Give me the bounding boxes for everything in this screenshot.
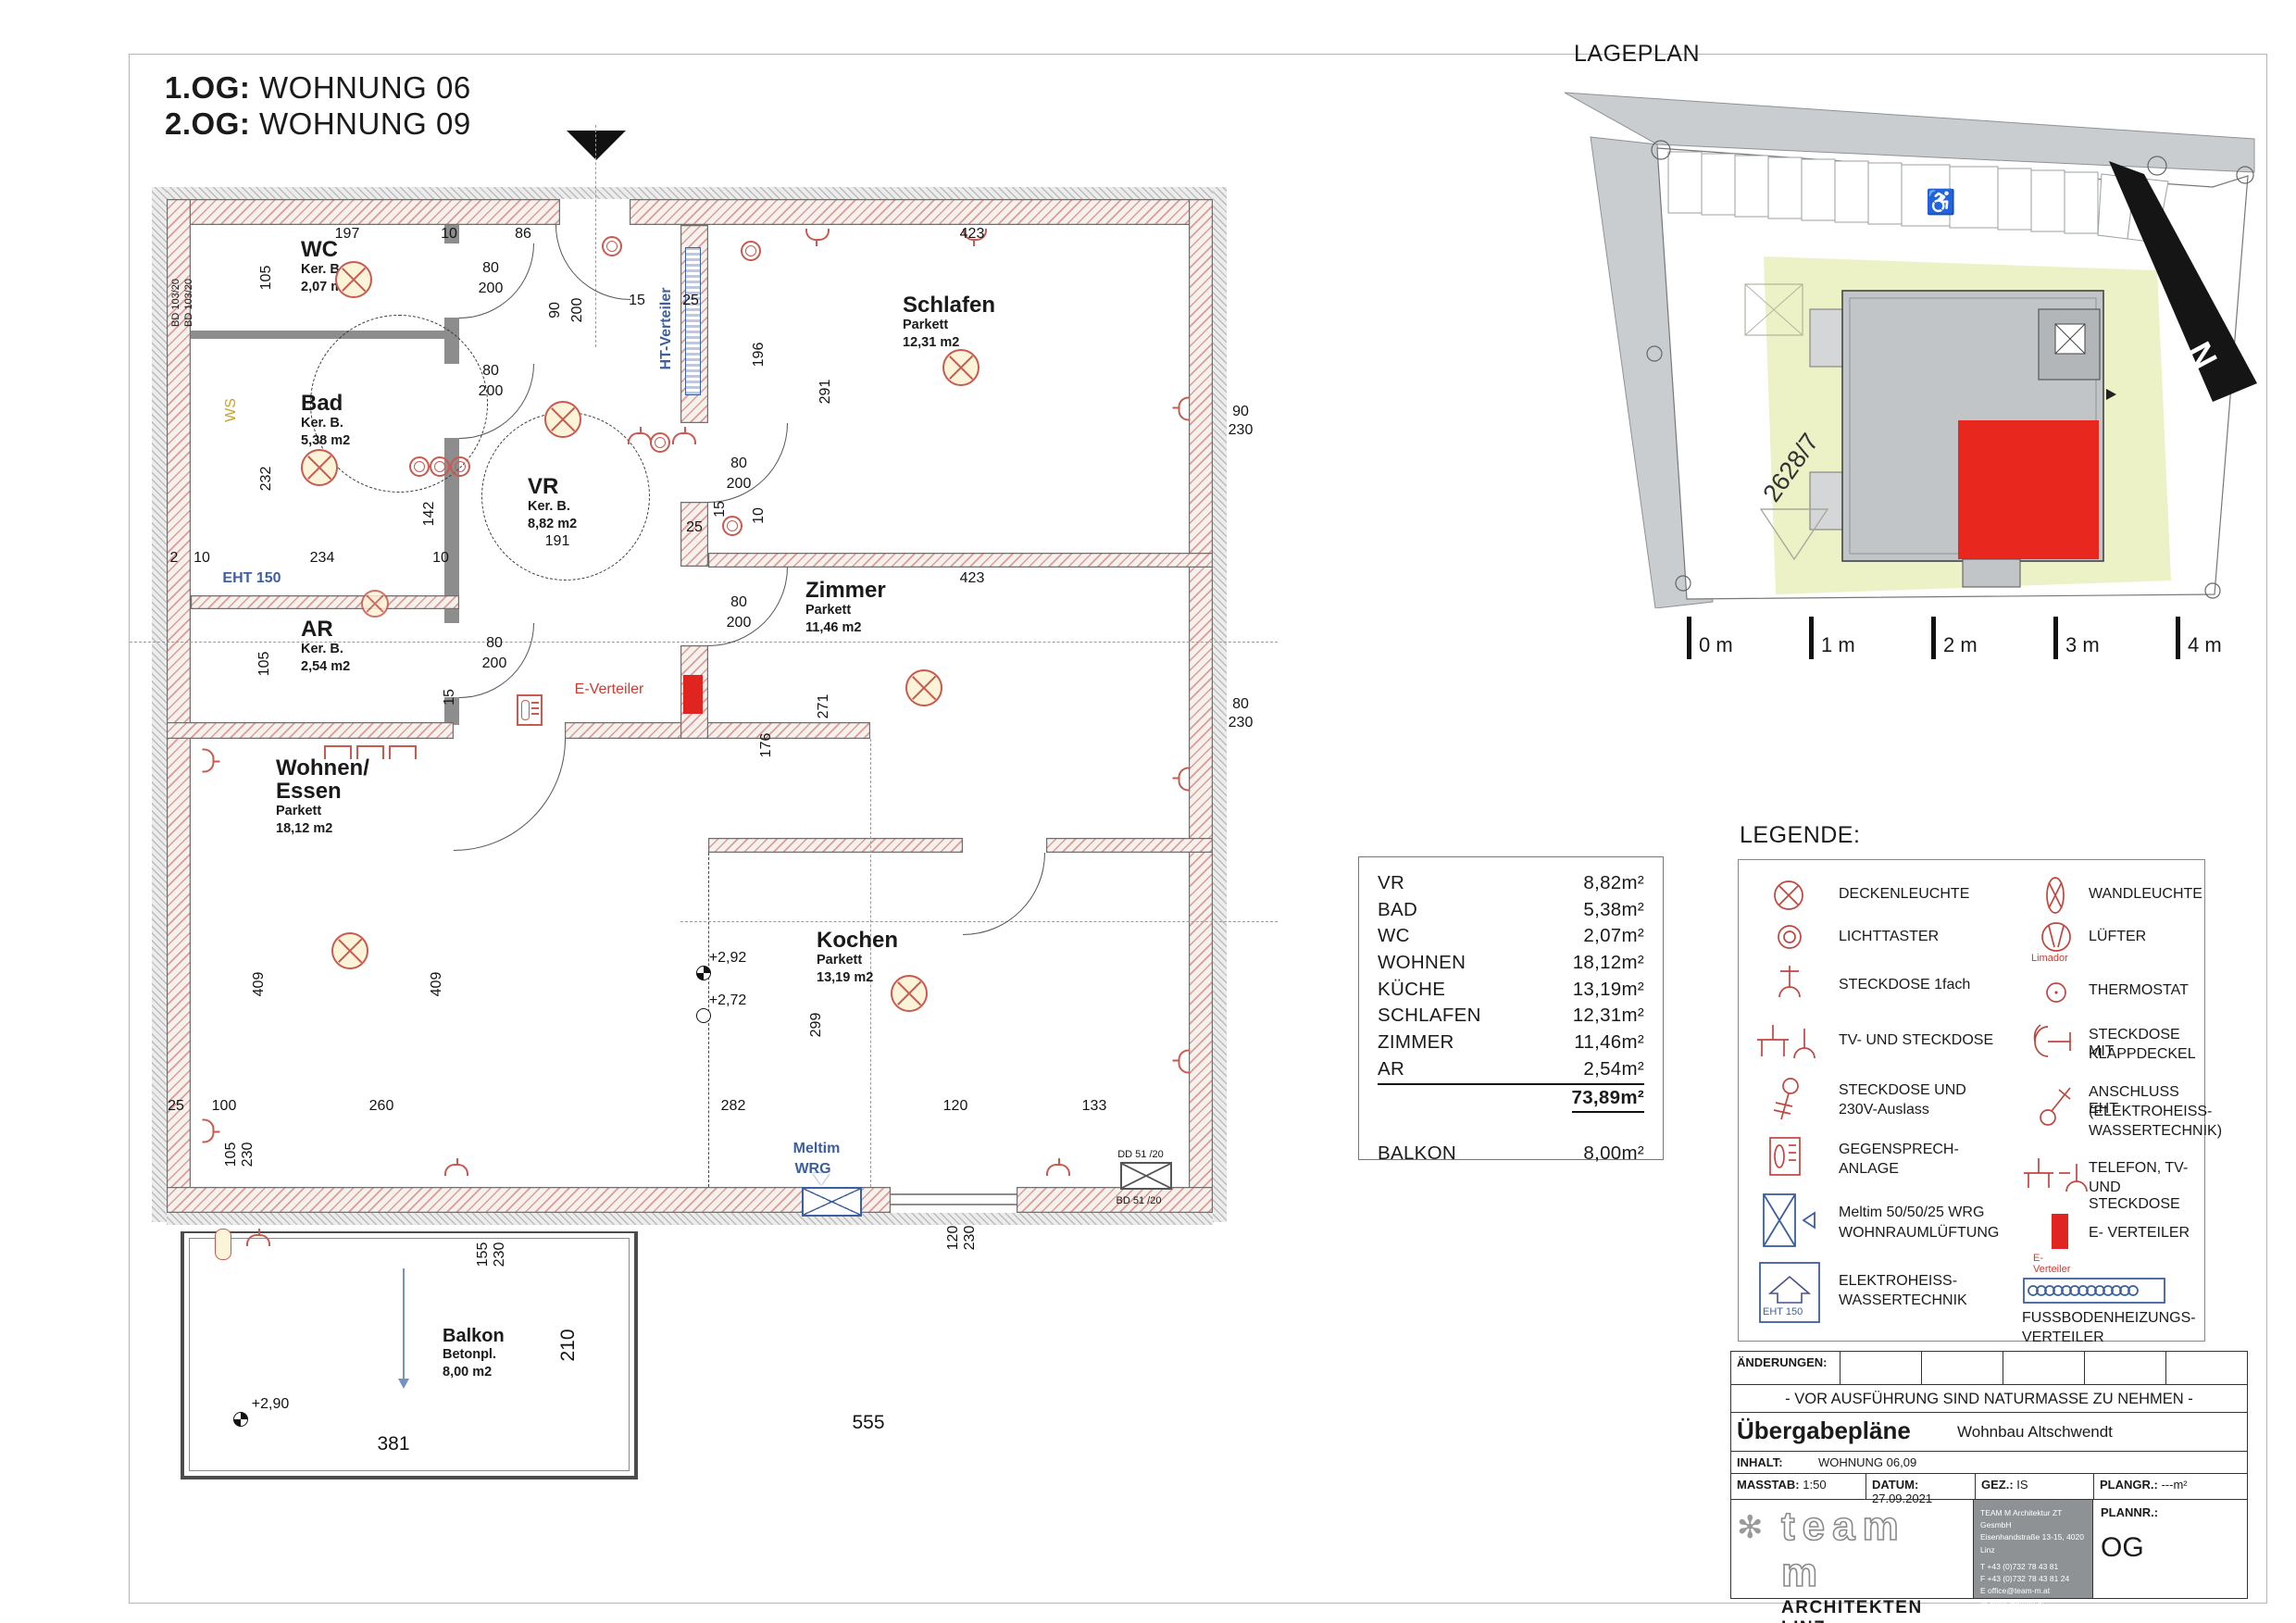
room-wohnen: Wohnen/ Essen Parkett 18,12 m2 [276, 756, 369, 838]
doc-type: Übergabepläne [1737, 1417, 1911, 1444]
room-name: Wohnen/ [276, 756, 369, 780]
row-label: VR [1378, 870, 1404, 897]
legend-label: WOHNRAUMLÜFTUNG [1839, 1225, 1999, 1242]
ceiling-light-icon [361, 590, 389, 618]
dim-label: BD 51 /20 [1117, 1195, 1162, 1206]
revision-cell [2003, 1352, 2085, 1384]
legend-label: LÜFTER [2089, 929, 2146, 945]
legend-label: 230V-Auslass [1839, 1102, 1929, 1118]
legend-label: ELEKTROHEISS- [1839, 1273, 1957, 1290]
dim-label: 200 [727, 615, 752, 631]
legend-label: STECKDOSE 1fach [1839, 977, 1970, 993]
datum-label: DATUM: [1872, 1478, 1918, 1492]
dim-label: 282 [721, 1098, 746, 1115]
wall [167, 199, 560, 225]
wall [167, 187, 1213, 199]
socket-icon [805, 229, 830, 241]
wall [152, 187, 167, 1222]
ceiling-light-icon [905, 669, 942, 706]
room-area: 8,82 m2 [528, 516, 577, 533]
dim-label: 200 [569, 298, 586, 323]
contact-line: W www.team-m.at [1980, 1597, 2086, 1609]
wall-light-icon [215, 1229, 231, 1260]
dim-label: 409 [251, 972, 268, 997]
room-area: 5,38 m2 [301, 432, 350, 450]
socket-icon [444, 1164, 468, 1176]
e-verteiler-icon [2044, 1212, 2076, 1253]
firm-name: ARCHITEKTEN LINZ [1781, 1598, 1967, 1623]
firm-logo-cell: ✻ team m ARCHITEKTEN LINZ Visionen werde… [1731, 1500, 1974, 1598]
masstab-label: MASSTAB: [1737, 1478, 1800, 1492]
title-line1-label: 1.OG: [165, 70, 250, 105]
legend-label: THERMOSTAT [2089, 982, 2189, 999]
revision-cell [1922, 1352, 2003, 1384]
dim-label: 232 [258, 467, 275, 492]
table-total-row: 73,89m² [1378, 1085, 1644, 1114]
dim-label: 423 [960, 570, 985, 587]
legend-label: FUSSBODENHEIZUNGS- [2022, 1310, 2196, 1327]
row-label: WC [1378, 923, 1410, 950]
total-value: 73,89m² [1572, 1085, 1644, 1114]
legend-label: WASSERTECHNIK [1839, 1292, 1967, 1309]
site-plan: ♿ N 2628/7 [1565, 76, 2264, 608]
row-label: WOHNEN [1378, 950, 1466, 977]
socket-icon [1179, 1050, 1191, 1074]
level-mark-icon [696, 1008, 711, 1023]
socket-icon [1046, 1164, 1070, 1176]
scale-label: 2 m [1943, 633, 1978, 659]
row-label: BAD [1378, 897, 1417, 924]
ceiling-light-icon [544, 401, 581, 438]
ceiling-light-icon [1770, 877, 1807, 914]
team-m-logo: team m [1781, 1504, 1967, 1596]
row-value: 13,19m² [1573, 977, 1644, 1004]
e-verteiler-box [683, 675, 703, 714]
room-kochen: Kochen Parkett 13,19 m2 [817, 929, 898, 987]
legend-item [1772, 960, 1805, 1005]
scale-label: 3 m [2065, 633, 2100, 659]
ht-verteiler-label: HT-Verteiler [658, 288, 675, 370]
legend-item [1776, 923, 1803, 955]
row-value: 11,46m² [1574, 1030, 1644, 1056]
legend-label: DECKENLEUCHTE [1839, 886, 1969, 903]
plangr-label: PLANGR.: [2100, 1478, 2158, 1492]
contact-line: Eisenhandstraße 13-15, 4020 Linz [1980, 1531, 2086, 1555]
dim-label: DD 51 /20 [1117, 1149, 1164, 1160]
dim-label: 271 [816, 694, 832, 719]
socket-icon [1179, 397, 1191, 421]
row-value: 2,07m² [1583, 923, 1644, 950]
dim-label: 299 [808, 1013, 825, 1038]
room-name: Bad [301, 392, 350, 415]
legend-item [1766, 1134, 1807, 1185]
contact-line: F +43 (0)732 78 43 81 24 [1980, 1573, 2086, 1585]
wall [167, 1187, 891, 1213]
dim-label: 234 [310, 550, 335, 567]
masstab-value: 1:50 [1803, 1478, 1826, 1492]
legend-label: Meltim 50/50/25 WRG [1839, 1205, 1984, 1221]
entrance-marker-icon [567, 131, 626, 160]
light-switch-icon [430, 456, 450, 477]
dim-label: 10 [193, 550, 210, 567]
tv-socket-icon [1755, 1019, 1820, 1064]
legend-item [2022, 1275, 2170, 1311]
row-label: AR [1378, 1056, 1404, 1083]
wall [1189, 199, 1213, 1213]
room-name: AR [301, 618, 350, 641]
socket-icon [203, 749, 215, 773]
light-switch-icon [602, 236, 622, 256]
scale-bar: 0 m 1 m 2 m 3 m 4 m [1687, 617, 2296, 659]
dim-label: 200 [479, 383, 504, 400]
wall [630, 199, 1213, 225]
legend-item: EHT 150 [1757, 1260, 1822, 1331]
ceiling-light-icon [942, 349, 980, 386]
wall [167, 1213, 1213, 1225]
socket-230v-icon [1770, 1075, 1807, 1125]
wall-light-icon [2044, 875, 2066, 916]
wall [167, 722, 454, 739]
revision-cell [1841, 1352, 1922, 1384]
row-value: 18,12m² [1573, 950, 1644, 977]
plannr-cell: PLANNR.: OG [2092, 1500, 2247, 1598]
light-switch-icon [1776, 923, 1803, 951]
socket-icon [1179, 768, 1191, 792]
dim-label: 15 [442, 689, 458, 705]
room-material: Ker. B. [301, 415, 350, 432]
room-name: Schlafen [903, 293, 995, 317]
scale-tick [1687, 617, 1691, 659]
legend-label: TV- UND STECKDOSE [1839, 1032, 1993, 1049]
room-name: VR [528, 475, 577, 498]
room-schlafen: Schlafen Parkett 12,31 m2 [903, 293, 995, 352]
legend-label: TELEFON, TV- [2089, 1160, 2188, 1177]
legend-label: (ELEKTROHEISS- [2089, 1104, 2212, 1120]
dim-label: 25 [682, 293, 699, 309]
revision-cell [2085, 1352, 2166, 1384]
light-switch-icon [409, 456, 430, 477]
legend-label: STECKDOSE UND [1839, 1082, 1966, 1099]
level-mark-icon [696, 966, 711, 980]
room-bad: Bad Ker. B. 5,38 m2 [301, 392, 350, 450]
socket-flap-icon [2033, 1019, 2078, 1066]
room-area-table: VR8,82m² BAD5,38m² WC2,07m² WOHNEN18,12m… [1358, 856, 1664, 1160]
row-label: ZIMMER [1378, 1030, 1454, 1056]
dim-label: 200 [727, 476, 752, 493]
room-material: Parkett [903, 317, 995, 334]
wall [708, 838, 963, 853]
floor-heating-icon [2022, 1275, 2170, 1306]
scale-tick [2176, 617, 2180, 659]
room-vr: VR Ker. B. 8,82 m2 [528, 475, 577, 533]
inhalt-value: WOHNUNG 06,09 [1813, 1452, 2247, 1473]
tv-socket-icon [356, 745, 384, 759]
dim-label: 90 [547, 302, 564, 318]
dim-label: 10 [432, 550, 449, 567]
level-label: +2,72 [709, 993, 746, 1009]
dim-label: 142 [421, 502, 438, 527]
plangr-value: ---m² [2161, 1478, 2187, 1492]
room-name: Kochen [817, 929, 898, 952]
table-row: WC2,07m² [1378, 923, 1644, 950]
highlighted-unit [1958, 420, 2099, 559]
dim-label: 260 [369, 1098, 394, 1115]
balcony-door [891, 1204, 1017, 1205]
legend-label: E- VERTEILER [2089, 1225, 2190, 1242]
wall [1017, 1187, 1213, 1213]
level-label: +2,90 [252, 1396, 289, 1413]
inhalt-label: INHALT: [1731, 1452, 1813, 1473]
room-area: 2,54 m2 [301, 658, 350, 676]
dim-label: BD 103/20 [170, 279, 181, 327]
dim-label: BD 103/20 [183, 279, 194, 327]
dim-label: 200 [479, 281, 504, 297]
socket-icon [1772, 960, 1805, 1001]
dim-label: 191 [545, 533, 570, 550]
wrg-unit-icon [1761, 1192, 1822, 1251]
legend-item [1761, 1192, 1822, 1255]
plannr-label: PLANNR.: [2101, 1505, 2240, 1519]
legend-item [2022, 1153, 2090, 1202]
plan-sheet: 1.OG: WOHNUNG 06 2.OG: WOHNUNG 09 [0, 0, 2296, 1623]
dim-label: 230 [962, 1226, 979, 1251]
dim-label: 15 [629, 293, 645, 309]
floor-plan: WC Ker. B. 2,07 m2 Bad Ker. B. 5,38 m2 V… [167, 190, 1250, 1486]
legend-item [1755, 1019, 1820, 1068]
door-arc [708, 567, 788, 646]
thermostat-icon [2044, 980, 2068, 1005]
door-arc [555, 225, 630, 300]
room-balkon: Balkon Betonpl. 8,00 m2 [443, 1327, 505, 1381]
intercom-icon [1766, 1134, 1807, 1180]
legend-label: UND STECKDOSE [2089, 1180, 2204, 1213]
room-name: Zimmer [805, 579, 886, 602]
table-row: BALKON8,00m² [1378, 1141, 1644, 1167]
legend-label: ANLAGE [1839, 1161, 1899, 1178]
legend-label: VERTEILER [2022, 1330, 2104, 1346]
light-switch-icon [722, 516, 742, 536]
legend-title: LEGENDE: [1740, 822, 1860, 849]
balcony-door [891, 1193, 1017, 1195]
scale-tick [1809, 617, 1814, 659]
dim-label: 230 [1229, 422, 1254, 439]
dim-label: 133 [1082, 1098, 1107, 1115]
eht-label: EHT 150 [222, 570, 281, 587]
eht-caption: EHT 150 [1763, 1306, 1803, 1317]
table-row: WOHNEN18,12m² [1378, 950, 1644, 977]
ceiling-light-icon [335, 261, 372, 298]
wall [1046, 838, 1213, 853]
wall [565, 722, 870, 739]
firm-contact-box: TEAM M Architektur ZT GesmbH Eisenhandst… [1974, 1500, 2092, 1598]
dim-label: 80 [730, 594, 747, 611]
dim-label: 230 [1229, 715, 1254, 731]
gez-value: IS [2016, 1478, 2028, 1492]
dim-label: 210 [557, 1329, 580, 1361]
room-area: 12,31 m2 [903, 334, 995, 352]
dim-label: 80 [730, 456, 747, 472]
title-line2-value: WOHNUNG 09 [259, 106, 471, 141]
dim-label: WS [223, 398, 240, 422]
ceiling-light-icon [331, 932, 368, 969]
scale-tick [2053, 617, 2058, 659]
light-switch-icon [741, 241, 761, 261]
light-switch-icon [650, 432, 670, 453]
row-value: 8,82m² [1583, 870, 1644, 897]
room-material: Ker. B. [301, 641, 350, 658]
wall [1213, 187, 1227, 1222]
dim-label: 25 [686, 519, 703, 536]
legend-label: WASSERTECHNIK) [2089, 1123, 2222, 1140]
logo-flower-icon: ✻ [1737, 1509, 1764, 1546]
wrg-unit [802, 1187, 862, 1217]
fan-caption: Limador [2031, 953, 2068, 964]
title-line1-value: WOHNUNG 06 [259, 70, 471, 105]
door-arc [963, 853, 1045, 935]
dim-label: 80 [482, 363, 499, 380]
door-arc [454, 739, 566, 851]
dim-label: 2 [170, 550, 179, 567]
scale-label: 0 m [1699, 633, 1733, 659]
table-row: VR8,82m² [1378, 870, 1644, 897]
dim-label: 100 [212, 1098, 237, 1115]
wall [708, 553, 1213, 568]
slope-arrow-icon [403, 1268, 405, 1380]
row-label: KÜCHE [1378, 977, 1445, 1004]
shaft-box [1120, 1162, 1172, 1190]
room-ar: AR Ker. B. 2,54 m2 [301, 618, 350, 676]
room-material: Parkett [817, 952, 898, 969]
contact-line: TEAM M Architektur ZT GesmbH [1980, 1507, 2086, 1531]
dim-label: 15 [712, 501, 729, 518]
aenderungen-label: ÄNDERUNGEN: [1731, 1352, 1841, 1384]
legend-item [2037, 1080, 2078, 1133]
scale-label: 4 m [2188, 633, 2222, 659]
dim-label: 291 [817, 380, 834, 405]
row-label: BALKON [1378, 1141, 1456, 1167]
dim-label: 409 [429, 972, 445, 997]
scale-label: 1 m [1821, 633, 1855, 659]
legend-label: WANDLEUCHTE [2089, 886, 2202, 903]
dim-label: 120 [945, 1226, 962, 1251]
room-name: Essen [276, 780, 369, 803]
dim-label: 80 [482, 260, 499, 277]
scale-tick [1931, 617, 1936, 659]
plannr-value: OG [2101, 1532, 2240, 1564]
room-area: 13,19 m2 [817, 969, 898, 987]
dim-label: 423 [960, 226, 985, 243]
title-block: ÄNDERUNGEN: - VOR AUSFÜHRUNG SIND NATURM… [1730, 1351, 2248, 1599]
table-row: KÜCHE13,19m² [1378, 977, 1644, 1004]
room-area: 11,46 m2 [805, 619, 886, 637]
revision-cell [2166, 1352, 2247, 1384]
contact-line: T +43 (0)732 78 43 81 [1980, 1561, 2086, 1573]
dim-label: 105 [256, 652, 273, 677]
table-row: AR2,54m² [1378, 1056, 1644, 1085]
dim-label: 86 [515, 226, 531, 243]
page-title: 1.OG: WOHNUNG 06 2.OG: WOHNUNG 09 [165, 70, 471, 143]
dim-label: 80 [1232, 696, 1249, 713]
project-name: Wohnbau Altschwendt [1957, 1423, 2113, 1442]
legend-label: LICHTTASTER [1839, 929, 1939, 945]
room-area: 8,00 m2 [443, 1364, 505, 1381]
meltim-label: Meltim [793, 1141, 841, 1157]
dim-label: 105 [258, 266, 275, 291]
row-label: SCHLAFEN [1378, 1003, 1481, 1030]
legend-item [2044, 980, 2068, 1009]
gez-label: GEZ.: [1981, 1478, 2014, 1492]
room-name: Balkon [443, 1327, 505, 1346]
legend-item: E-Verteiler [2044, 1212, 2076, 1257]
table-row: SCHLAFEN12,31m² [1378, 1003, 1644, 1030]
wall [167, 199, 191, 1213]
legend-label: GEGENSPRECH- [1839, 1142, 1959, 1158]
socket-icon [672, 432, 696, 444]
table-row: BAD5,38m² [1378, 897, 1644, 924]
room-zimmer: Zimmer Parkett 11,46 m2 [805, 579, 886, 637]
row-value: 5,38m² [1583, 897, 1644, 924]
title-line2-label: 2.OG: [165, 106, 250, 141]
dim-label: 25 [168, 1098, 184, 1115]
light-switch-icon [450, 456, 470, 477]
legend-item [2033, 1019, 2078, 1070]
room-area: 18,12 m2 [276, 820, 369, 838]
dim-label: 10 [441, 226, 457, 243]
dim-label: 120 [943, 1098, 968, 1115]
intercom-icon [517, 694, 543, 726]
dim-label: 80 [486, 635, 503, 652]
socket-icon [246, 1234, 270, 1246]
row-value: 12,31m² [1573, 1003, 1644, 1030]
table-row: ZIMMER11,46m² [1378, 1030, 1644, 1056]
dim-label: 155 [475, 1242, 492, 1267]
e-verteiler-label: E-Verteiler [575, 681, 644, 698]
socket-icon [628, 432, 652, 444]
row-value: 8,00m² [1583, 1141, 1644, 1167]
level-mark-icon [233, 1412, 248, 1427]
dim-label: 105 [223, 1142, 240, 1167]
wall [191, 595, 459, 609]
eht-connection-icon [2037, 1080, 2078, 1129]
dim-label: 196 [751, 343, 767, 368]
dim-label: 90 [1232, 404, 1249, 420]
e-verteiler-caption: E-Verteiler [2033, 1253, 2076, 1275]
dim-label: 381 [377, 1433, 409, 1455]
room-material: Ker. B. [528, 498, 577, 516]
ceiling-light-icon [301, 449, 338, 486]
wrg-label: WRG [794, 1161, 830, 1178]
dim-label: 200 [482, 655, 507, 672]
legend-item [2044, 875, 2066, 920]
room-material: Betonpl. [443, 1346, 505, 1364]
row-value: 2,54m² [1583, 1056, 1644, 1083]
level-label: +2,92 [709, 950, 746, 967]
legend-label: KLAPPDECKEL [2089, 1046, 2196, 1063]
tv-socket-icon [324, 745, 352, 759]
socket-icon [203, 1119, 215, 1143]
dim-label: 197 [335, 226, 360, 243]
room-material: Parkett [805, 602, 886, 619]
dim-label: 10 [751, 507, 767, 524]
phone-tv-socket-icon [2022, 1153, 2090, 1197]
wheelchair-icon: ♿ [1926, 188, 1955, 216]
legend-item: Limador [2037, 919, 2076, 961]
legend-item [1770, 877, 1807, 918]
dim-label: 555 [852, 1412, 884, 1434]
contact-line: E office@team-m.at [1980, 1585, 2086, 1597]
ceiling-light-icon [891, 975, 928, 1012]
dim-label: 230 [492, 1242, 508, 1267]
